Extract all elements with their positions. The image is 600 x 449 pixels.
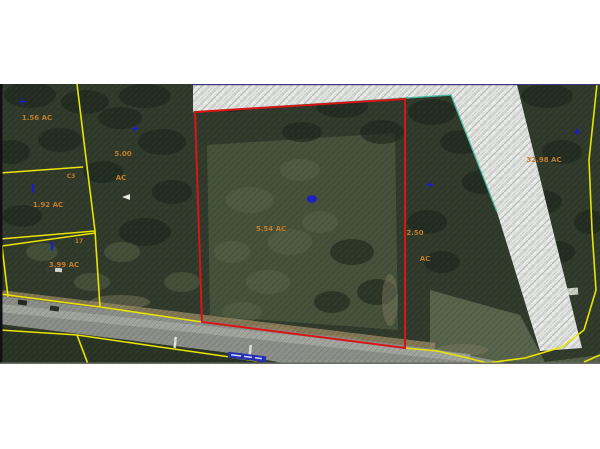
parcel-point-marker: + xyxy=(425,178,434,191)
aerial-imagery: ++++ 1.56 AC5.00ACC31.92 AC173.99 AC5.54… xyxy=(0,82,600,364)
parcel-acreage-32-98: 32.98 AC xyxy=(526,156,561,164)
parcel-acreage-5-00: 5.00 xyxy=(114,150,131,158)
parcel-point-marker: + xyxy=(130,122,139,135)
lot-code-17: 17 xyxy=(75,238,83,245)
parcel-acreage-1-56: 1.56 AC xyxy=(22,114,52,122)
parcel-acreage-1-92: 1.92 AC xyxy=(33,201,63,209)
scanline-grain xyxy=(0,84,600,364)
parcel-map-canvas[interactable]: ++++ 1.56 AC5.00ACC31.92 AC173.99 AC5.54… xyxy=(0,0,600,449)
parcel-acreage-2-50: 2.50 xyxy=(406,229,423,237)
parcel-point-marker: + xyxy=(17,95,26,108)
parcel-acreage-2-50-unit: AC xyxy=(420,255,431,263)
parcel-point-marker xyxy=(32,184,35,193)
map-frame-bottom xyxy=(0,363,600,365)
screenshot-stage: ++++ 1.56 AC5.00ACC31.92 AC173.99 AC5.54… xyxy=(0,0,600,449)
parcel-point-marker xyxy=(51,242,54,251)
lot-code-c3: C3 xyxy=(67,173,76,180)
parcel-point-marker: + xyxy=(572,125,581,138)
parcel-acreage-5-00-unit: AC xyxy=(116,174,127,182)
parcel-acreage-5-54: 5.54 AC xyxy=(256,225,286,233)
parcel-point-marker xyxy=(307,195,317,203)
map-frame-left xyxy=(0,84,3,364)
parcel-acreage-3-99: 3.99 AC xyxy=(49,261,79,269)
